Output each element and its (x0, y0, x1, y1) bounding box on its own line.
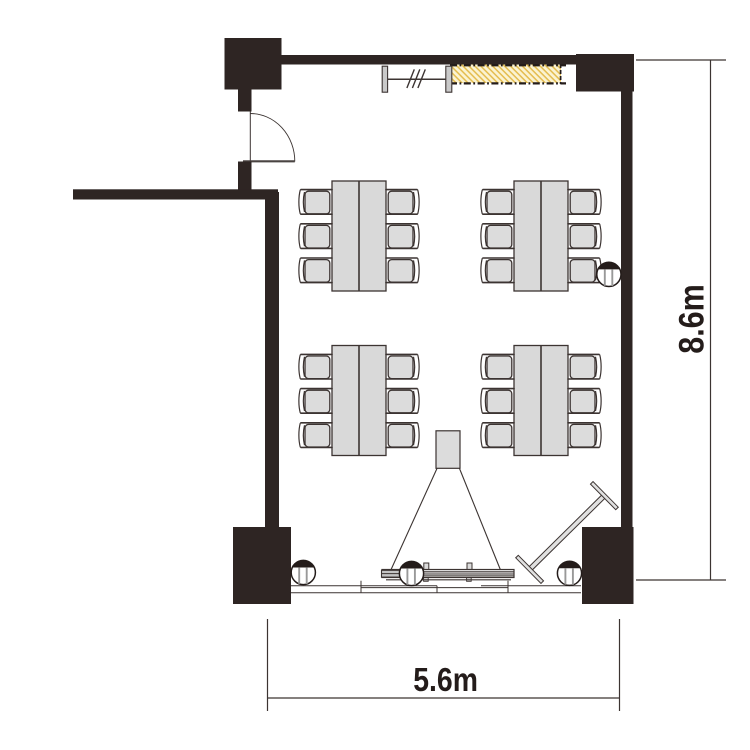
svg-text:5.6m: 5.6m (413, 661, 478, 699)
svg-text:8.6m: 8.6m (672, 284, 712, 354)
